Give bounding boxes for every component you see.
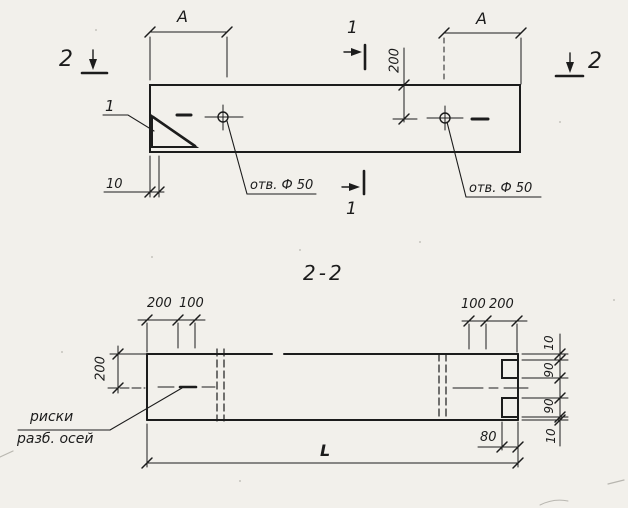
dim-a-left-label: A — [177, 9, 188, 25]
axis-marks-label-line2: разб. осей — [17, 432, 93, 446]
dim-200-section-left — [108, 346, 147, 393]
top-view-beam — [150, 85, 520, 152]
dim-top-right-100-label: 100 — [461, 298, 486, 311]
dim-top-left-200-label: 200 — [147, 297, 172, 310]
dim-200-section-left-label: 200 — [95, 354, 108, 384]
dim-a-left — [145, 27, 232, 80]
dim-a-right-label: A — [476, 11, 487, 27]
dim-200-100-top-left — [138, 315, 205, 352]
section-2-left-label: 2 — [59, 49, 73, 71]
notch-bottom — [502, 398, 518, 417]
hole-left-callout: отв. Ф 50 — [250, 179, 313, 192]
dim-80-label: 80 — [480, 431, 497, 444]
section-mark-1-top — [344, 45, 365, 69]
dim-length-label: L — [320, 443, 330, 459]
dim-right-10-bottom-label: 10 — [545, 421, 557, 451]
section-mark-1-bottom — [342, 171, 364, 194]
section-1-top-label: 1 — [347, 20, 358, 37]
section-dashed-axes — [217, 349, 446, 421]
detail-1-label: 1 — [105, 99, 115, 114]
detail-1-leader — [103, 115, 154, 131]
section-title: 2-2 — [303, 263, 345, 283]
section-mark-2-right — [556, 53, 583, 76]
dim-top-right-200-label: 200 — [489, 298, 514, 311]
section-1-bottom-label: 1 — [346, 201, 357, 218]
dim-right-10-top-label: 10 — [543, 328, 555, 358]
hole-right-callout: отв. Ф 50 — [469, 182, 532, 195]
dim-right-90-top-label: 90 — [543, 355, 555, 385]
section-mark-2-left — [82, 50, 107, 73]
dim-10-label: 10 — [106, 178, 123, 191]
dim-a-right — [439, 28, 526, 84]
hole-right — [427, 106, 488, 130]
drawing-sheet: A A 200 10 2 2 1 1 1 отв. Ф 50 отв. Ф 50… — [0, 0, 628, 508]
dim-length — [142, 422, 523, 468]
axis-marks-label-line1: риски — [30, 410, 73, 424]
dim-100-200-top-right — [462, 316, 527, 352]
dim-top-left-100-label: 100 — [179, 297, 204, 310]
section-2-right-label: 2 — [588, 51, 602, 73]
notch-top — [502, 360, 518, 378]
dim-right-90-bottom-label: 90 — [543, 391, 555, 421]
drawing-linework — [0, 0, 628, 508]
hole-left — [177, 105, 243, 130]
dim-200-top-view-label: 200 — [389, 46, 402, 76]
